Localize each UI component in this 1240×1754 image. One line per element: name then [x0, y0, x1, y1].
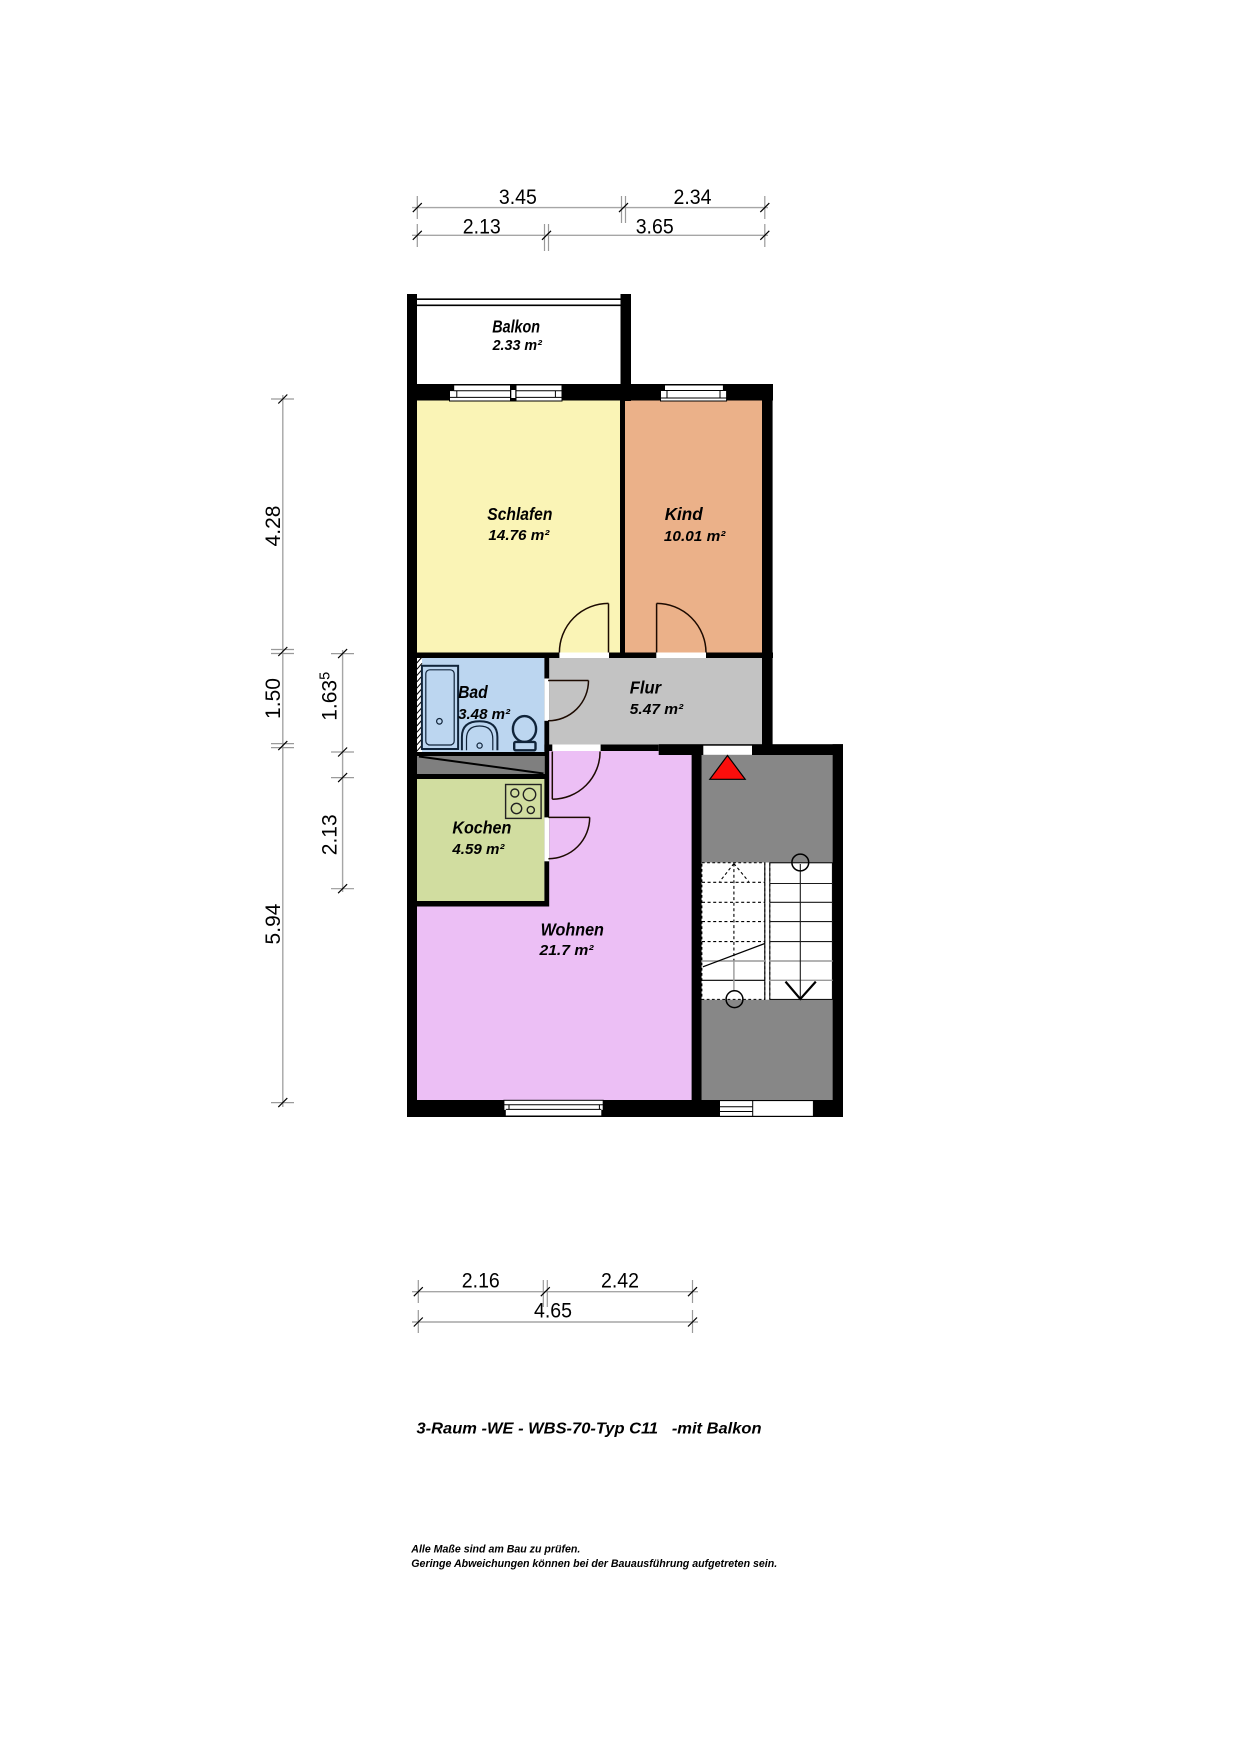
svg-text:4.59 m²: 4.59 m² [451, 842, 505, 858]
svg-text:4.28: 4.28 [262, 506, 285, 547]
svg-text:4.65: 4.65 [534, 1300, 572, 1323]
svg-text:Schlafen: Schlafen [487, 504, 552, 524]
svg-text:3.45: 3.45 [499, 186, 537, 209]
svg-text:1.50: 1.50 [262, 678, 285, 719]
svg-text:5.47 m²: 5.47 m² [630, 702, 685, 718]
svg-text:2.34: 2.34 [674, 186, 712, 209]
svg-text:2.16: 2.16 [462, 1270, 500, 1293]
svg-text:2.13: 2.13 [319, 814, 342, 855]
svg-text:5.94: 5.94 [262, 903, 285, 944]
svg-text:Flur: Flur [630, 678, 662, 698]
svg-text:3.48 m²: 3.48 m² [458, 707, 511, 723]
svg-text:Kind: Kind [665, 504, 703, 524]
svg-text:Alle Maße sind am Bau zu prüfe: Alle Maße sind am Bau zu prüfen. [410, 1544, 580, 1556]
svg-text:10.01 m²: 10.01 m² [664, 529, 727, 545]
svg-text:3-Raum -WE - WBS-70-Typ C11: 3-Raum -WE - WBS-70-Typ C11 -mit Balkon [417, 1421, 762, 1438]
svg-text:Bad: Bad [458, 682, 488, 702]
svg-text:Balkon: Balkon [492, 316, 540, 336]
svg-text:Geringe Abweichungen können be: Geringe Abweichungen können bei der Baua… [411, 1558, 777, 1570]
svg-text:Wohnen: Wohnen [541, 920, 604, 940]
svg-text:2.13: 2.13 [463, 216, 501, 239]
svg-text:3.65: 3.65 [636, 216, 674, 239]
svg-text:Kochen: Kochen [452, 818, 511, 838]
svg-text:14.76 m²: 14.76 m² [488, 528, 550, 544]
svg-text:2.33 m²: 2.33 m² [492, 338, 543, 354]
svg-text:2.42: 2.42 [601, 1270, 639, 1293]
svg-text:21.7 m²: 21.7 m² [538, 943, 594, 959]
